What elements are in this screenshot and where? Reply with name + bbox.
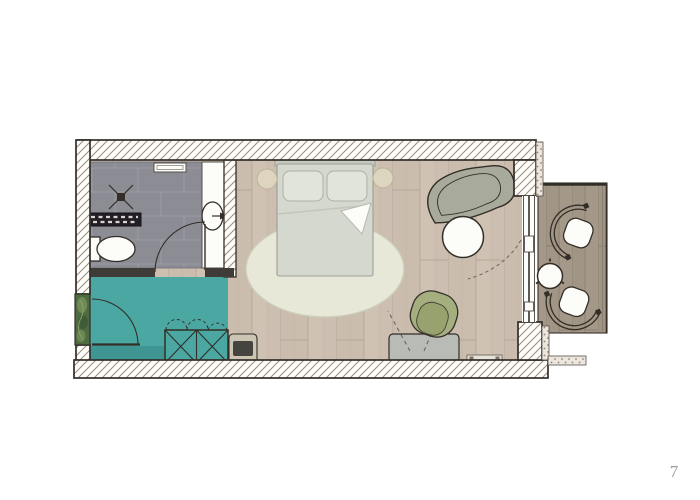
doormat bbox=[90, 346, 166, 361]
bathroom bbox=[87, 162, 228, 272]
document-page: 7 bbox=[0, 0, 700, 500]
towel-radiator bbox=[87, 213, 141, 226]
top-wall bbox=[78, 140, 536, 160]
floor-plan-canvas bbox=[0, 0, 700, 500]
double-bed bbox=[275, 159, 375, 276]
window-wall-stub-top bbox=[514, 160, 536, 196]
bathroom-entry-wall-right bbox=[205, 268, 234, 277]
page-number: 7 bbox=[662, 462, 686, 482]
toilet bbox=[87, 237, 135, 262]
bedside-stool-right bbox=[373, 168, 393, 188]
insulation-band-bottom bbox=[548, 356, 586, 365]
bedside-stool-left bbox=[257, 169, 277, 189]
bathroom-bedroom-partition bbox=[224, 160, 236, 277]
insulation-band-top bbox=[536, 142, 543, 196]
window-wall-stub-bottom bbox=[518, 322, 542, 360]
pillow-right bbox=[327, 171, 367, 201]
bathroom-entry-wall-left bbox=[90, 268, 155, 277]
window-frame-mark bbox=[525, 302, 534, 311]
entry-plant bbox=[75, 294, 90, 345]
entry bbox=[90, 277, 228, 363]
coffee-table bbox=[443, 217, 484, 258]
sliding-window bbox=[522, 196, 536, 322]
left-wall-upper bbox=[76, 140, 90, 294]
luggage-rack bbox=[229, 334, 257, 363]
pillow-left bbox=[283, 171, 323, 201]
window-handle bbox=[525, 236, 534, 252]
bottom-wall bbox=[74, 360, 548, 378]
suitcase bbox=[233, 341, 253, 356]
desk bbox=[389, 334, 459, 362]
wall-niche bbox=[154, 163, 186, 172]
insulation-band-right bbox=[542, 326, 549, 360]
